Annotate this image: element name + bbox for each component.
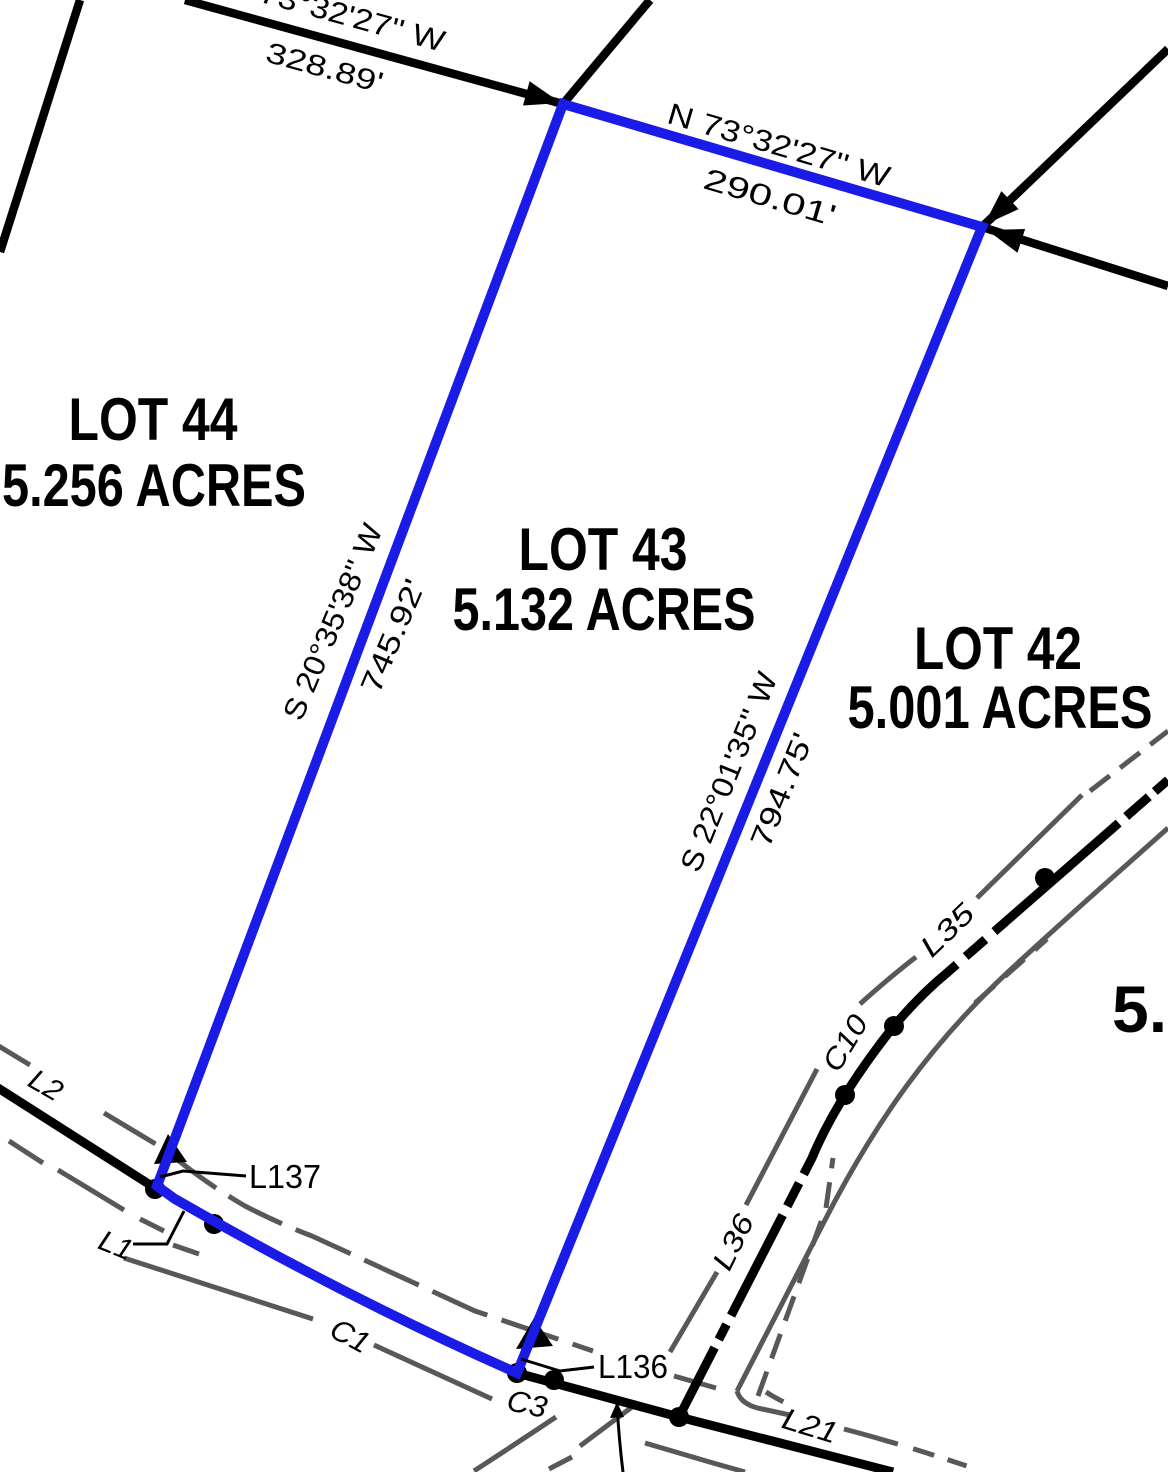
svg-text:LOT 42: LOT 42: [914, 615, 1082, 682]
svg-text:LOT 44: LOT 44: [69, 386, 239, 453]
svg-text:L136: L136: [598, 1348, 668, 1385]
svg-text:L137: L137: [249, 1158, 321, 1195]
svg-text:5.256 ACRES: 5.256 ACRES: [2, 452, 306, 519]
svg-text:LOT 43: LOT 43: [519, 516, 688, 583]
svg-text:5.3: 5.3: [1112, 972, 1168, 1046]
svg-text:5.001 ACRES: 5.001 ACRES: [848, 674, 1153, 741]
svg-text:5.132 ACRES: 5.132 ACRES: [453, 576, 756, 643]
